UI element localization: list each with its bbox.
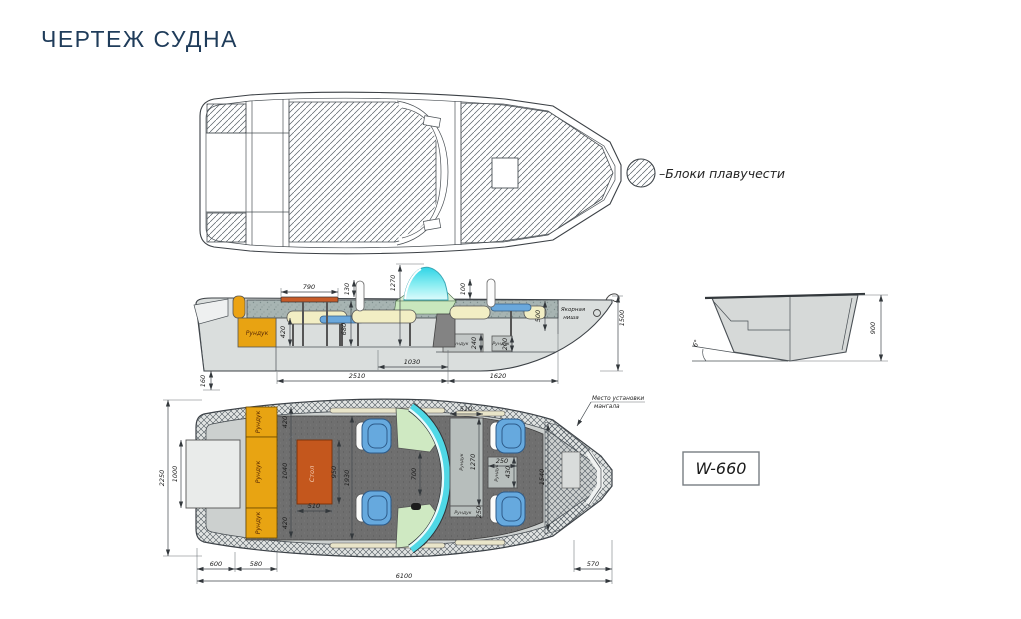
buoyancy-legend-icon — [627, 159, 655, 187]
dim-430: 430 — [504, 466, 512, 478]
dim-1030: 1030 — [404, 358, 421, 366]
section-view: 6° 900 — [691, 294, 888, 361]
helm-speaker — [411, 503, 421, 510]
seat-post-1 — [356, 281, 364, 311]
dim-1270-plan: 1270 — [469, 454, 477, 471]
console-pedestal — [433, 314, 455, 347]
dim-240: 240 — [470, 337, 478, 349]
plan-view: Рундук Рундук Рундук Стол Рундук Рундук — [158, 396, 645, 584]
dim-600: 600 — [210, 560, 222, 568]
plan-locker-c-label: Рундук — [255, 511, 262, 534]
stern-locker-cap — [233, 296, 245, 318]
plan-locker-a-label: Рундук — [255, 410, 262, 433]
grill-note-2: мангала — [594, 404, 620, 410]
seat-bow-port — [490, 419, 525, 453]
dim-420-side: 420 — [279, 326, 287, 338]
anchor-niche-label-1: Якорная — [560, 307, 586, 313]
bow-hatch-top-view — [492, 158, 518, 188]
dim-200: 200 — [501, 338, 509, 350]
dim-1040: 1040 — [281, 463, 289, 480]
dim-420b: 420 — [281, 517, 289, 529]
dim-160: 160 — [199, 375, 207, 387]
plan-table-label: Стол — [308, 466, 316, 482]
dim-510-bow: 510 — [460, 405, 472, 413]
bench-aft-2 — [352, 310, 416, 323]
dim-2250: 2250 — [158, 470, 166, 487]
windshield-side — [404, 267, 448, 300]
dim-790: 790 — [303, 283, 315, 291]
buoyancy-block-cockpit — [289, 102, 436, 242]
top-view — [200, 92, 621, 254]
bow-compartment — [562, 452, 580, 488]
plan-locker-b-label: Рундук — [255, 460, 262, 483]
dim-580: 580 — [250, 560, 262, 568]
dim-1540: 1540 — [538, 469, 546, 486]
bow-long-locker — [450, 418, 483, 506]
center-console-label: Рундук — [494, 464, 500, 481]
blueprint-page: ЧЕРТЕЖ СУДНА — [0, 0, 1021, 619]
model-badge-label: W-660 — [696, 459, 747, 478]
dim-700: 700 — [410, 468, 418, 480]
model-badge: W-660 — [683, 452, 759, 485]
dim-2510: 2510 — [349, 372, 366, 380]
dim-950: 950 — [330, 466, 338, 478]
buoyancy-legend-label: –Блоки плавучести — [659, 166, 785, 181]
seat-aft-port — [356, 419, 391, 453]
dim-1930: 1930 — [343, 470, 351, 487]
dim-100: 100 — [459, 283, 467, 295]
dim-6100: 6100 — [396, 572, 413, 580]
dim-1620: 1620 — [490, 372, 507, 380]
anchor-niche-label-2: ниша — [563, 315, 579, 321]
dim-420a: 420 — [281, 416, 289, 428]
buoyancy-block-stern-bottom — [207, 213, 246, 242]
bow-long-locker-label: Рундук — [459, 453, 465, 470]
dim-250-bowend: 250 — [475, 506, 483, 518]
buoyancy-legend: –Блоки плавучести — [627, 159, 785, 187]
dim-1000: 1000 — [171, 466, 179, 483]
drawing-canvas: –Блоки плавучести Рундук Рундук Рундук — [0, 0, 1021, 619]
transom-platform — [186, 440, 240, 508]
dim-130: 130 — [343, 283, 351, 295]
backrest-bow — [491, 304, 531, 311]
seat-post-2 — [487, 279, 495, 307]
dim-570: 570 — [587, 560, 599, 568]
table-side — [281, 297, 338, 302]
dim-510-table: 510 — [308, 502, 320, 510]
buoyancy-block-foredeck — [461, 103, 613, 243]
rail-bottom-bow — [455, 540, 505, 545]
side-view: Рундук Рундук Рундук — [194, 264, 626, 390]
dim-250-console: 250 — [496, 457, 508, 465]
dim-1500: 1500 — [618, 310, 626, 327]
bench-bow-1 — [450, 306, 490, 319]
rail-bottom-aft — [330, 543, 445, 548]
buoyancy-block-stern-top — [207, 104, 246, 133]
dim-deadrise: 6° — [691, 338, 701, 348]
dim-1270: 1270 — [389, 275, 397, 292]
grill-note-1: Место установки — [592, 396, 644, 402]
dim-680: 680 — [340, 323, 348, 335]
stern-locker-label: Рундук — [246, 330, 269, 337]
hull-section — [712, 295, 858, 361]
dim-900: 900 — [869, 322, 877, 334]
seat-aft-starboard — [356, 491, 391, 525]
dim-500: 500 — [534, 310, 542, 322]
rail-top-aft — [330, 408, 445, 413]
bow-end-locker-label: Рундук — [454, 510, 471, 516]
seat-bow-starboard — [490, 492, 525, 526]
